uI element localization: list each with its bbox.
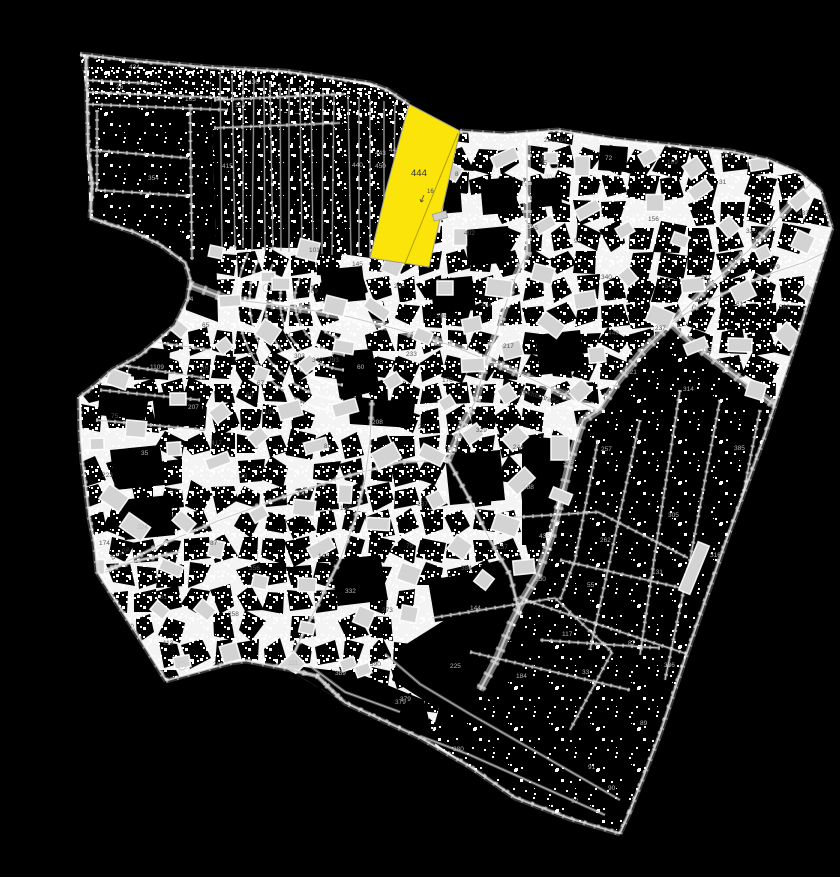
svg-text:444: 444 [411,168,427,179]
svg-text:308: 308 [436,313,447,320]
svg-text:404: 404 [481,302,492,309]
svg-text:345: 345 [563,459,574,466]
svg-text:258: 258 [228,611,239,618]
svg-text:80: 80 [324,443,332,450]
svg-text:449: 449 [608,330,619,337]
svg-text:348: 348 [297,491,308,498]
svg-text:314: 314 [683,386,694,393]
svg-text:87: 87 [210,540,218,547]
svg-text:144: 144 [470,605,481,612]
svg-text:60: 60 [357,364,365,371]
svg-text:131: 131 [652,569,663,576]
svg-text:90: 90 [608,785,616,792]
svg-text:273: 273 [382,607,393,614]
svg-text:174: 174 [99,540,110,547]
svg-text:72: 72 [605,155,613,162]
svg-text:30: 30 [545,174,553,181]
svg-text:81: 81 [160,594,168,601]
svg-text:309: 309 [307,288,318,295]
svg-text:143: 143 [318,553,329,560]
svg-text:402: 402 [464,230,475,237]
svg-text:26: 26 [116,84,124,91]
svg-text:332: 332 [345,588,356,595]
svg-text:79: 79 [406,543,414,550]
svg-text:170: 170 [442,377,453,384]
svg-text:35: 35 [141,450,149,457]
svg-text:368: 368 [779,304,790,311]
svg-text:33: 33 [582,669,590,676]
svg-text:157: 157 [497,544,508,551]
svg-text:28: 28 [240,473,248,480]
svg-text:9: 9 [540,155,544,162]
svg-text:105: 105 [527,225,538,232]
svg-text:8: 8 [455,171,459,178]
svg-text:340: 340 [312,357,323,364]
svg-text:22: 22 [418,424,426,431]
svg-text:55: 55 [587,582,595,589]
svg-text:114: 114 [235,102,246,109]
svg-text:305: 305 [668,512,679,519]
svg-text:390: 390 [559,388,570,395]
svg-text:188: 188 [523,484,534,491]
svg-text:154: 154 [661,283,672,290]
svg-text:385: 385 [734,445,745,452]
svg-text:200: 200 [394,283,405,290]
svg-text:113: 113 [163,640,174,647]
svg-text:184: 184 [516,673,527,680]
svg-text:435: 435 [539,533,550,540]
svg-text:67: 67 [257,380,265,387]
svg-text:303: 303 [294,353,305,360]
svg-text:91: 91 [574,238,582,245]
svg-text:262: 262 [600,537,611,544]
svg-text:225: 225 [721,153,732,160]
svg-text:145: 145 [352,261,363,268]
svg-text:87: 87 [628,640,636,647]
svg-text:415: 415 [222,163,233,170]
svg-text:221: 221 [626,369,637,376]
svg-text:329: 329 [476,427,487,434]
svg-text:434: 434 [129,64,140,71]
svg-text:237: 237 [655,325,666,332]
svg-text:244: 244 [513,444,524,451]
svg-text:384: 384 [461,565,472,572]
svg-text:1109: 1109 [150,364,164,371]
svg-text:75: 75 [111,413,119,420]
svg-text:207: 207 [188,404,199,411]
svg-text:225: 225 [450,663,461,670]
svg-text:223: 223 [102,472,113,479]
svg-text:204: 204 [556,137,567,144]
svg-text:257: 257 [601,446,612,453]
svg-text:293: 293 [328,357,339,364]
svg-text:111: 111 [288,660,298,667]
svg-text:169: 169 [667,159,678,166]
svg-text:356: 356 [249,565,260,572]
svg-text:250: 250 [535,576,546,583]
svg-text:65: 65 [202,322,210,329]
svg-text:211: 211 [701,274,712,281]
svg-text:64: 64 [248,350,256,357]
svg-text:417: 417 [211,440,222,447]
svg-text:320: 320 [746,228,757,235]
svg-text:217: 217 [503,343,514,350]
svg-text:86: 86 [201,365,209,372]
svg-text:450: 450 [375,163,386,170]
svg-text:16: 16 [427,189,434,195]
svg-text:386: 386 [664,662,675,669]
svg-text:233: 233 [406,351,417,358]
svg-text:156: 156 [648,216,659,223]
svg-text:443: 443 [375,150,386,157]
svg-text:390: 390 [370,661,381,668]
svg-text:379: 379 [395,699,406,706]
svg-text:101: 101 [309,247,320,254]
svg-text:106: 106 [264,409,275,416]
svg-text:295: 295 [701,347,712,354]
svg-text:89: 89 [640,720,648,727]
svg-text:279: 279 [769,264,780,271]
svg-text:182: 182 [340,505,351,512]
svg-text:69: 69 [246,392,254,399]
svg-text:354: 354 [148,175,159,182]
svg-text:433: 433 [798,210,809,217]
svg-text:61: 61 [736,301,744,308]
svg-text:203: 203 [544,137,555,144]
svg-text:187: 187 [417,501,428,508]
svg-text:389: 389 [335,670,346,677]
svg-text:340: 340 [601,274,612,281]
svg-text:31: 31 [719,179,727,186]
svg-text:224: 224 [137,524,148,531]
svg-text:57: 57 [170,488,178,495]
svg-text:436: 436 [248,79,259,86]
svg-text:208: 208 [372,419,383,426]
svg-text:117: 117 [562,631,573,638]
svg-text:105: 105 [185,96,196,103]
svg-text:91: 91 [588,764,596,771]
svg-text:440: 440 [352,162,363,169]
